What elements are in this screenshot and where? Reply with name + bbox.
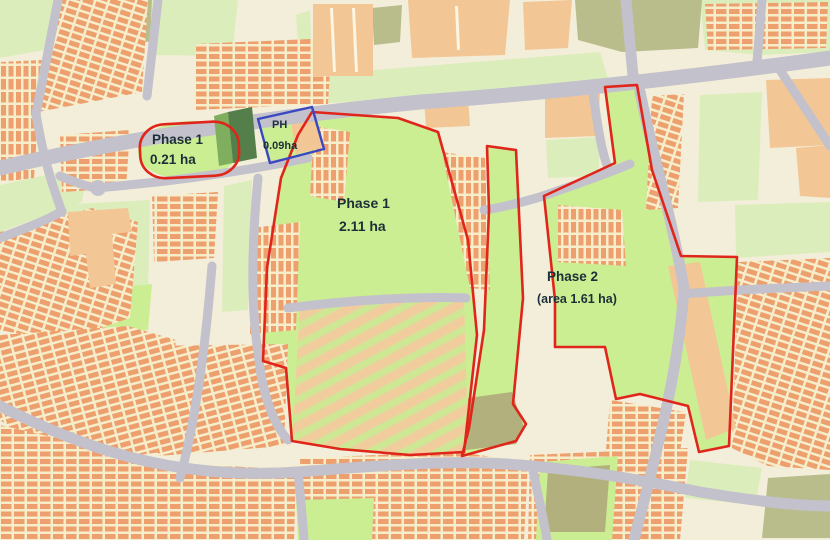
phase1-site-label-line2: 0.21 ha xyxy=(150,152,196,167)
phase2-label-line2: (area 1.61 ha) xyxy=(537,292,617,306)
ph-site-label-line1: PH xyxy=(272,119,287,131)
map-canvas: Phase 1 0.21 ha PH 0.09ha Phase 1 2.11 h… xyxy=(0,0,830,540)
phase2-label-line1: Phase 2 xyxy=(547,269,598,284)
phase1-main-label-line2: 2.11 ha xyxy=(339,218,386,234)
phase1-main-label-line1: Phase 1 xyxy=(337,195,390,211)
ph-site-label-line2: 0.09ha xyxy=(263,140,298,152)
phase1-site-label-line1: Phase 1 xyxy=(152,132,204,147)
roundabout xyxy=(90,180,106,196)
terrace-stripes xyxy=(292,298,468,454)
phasing-map: Phase 1 0.21 ha PH 0.09ha Phase 1 2.11 h… xyxy=(0,0,830,540)
dark-green-strip xyxy=(228,107,257,163)
